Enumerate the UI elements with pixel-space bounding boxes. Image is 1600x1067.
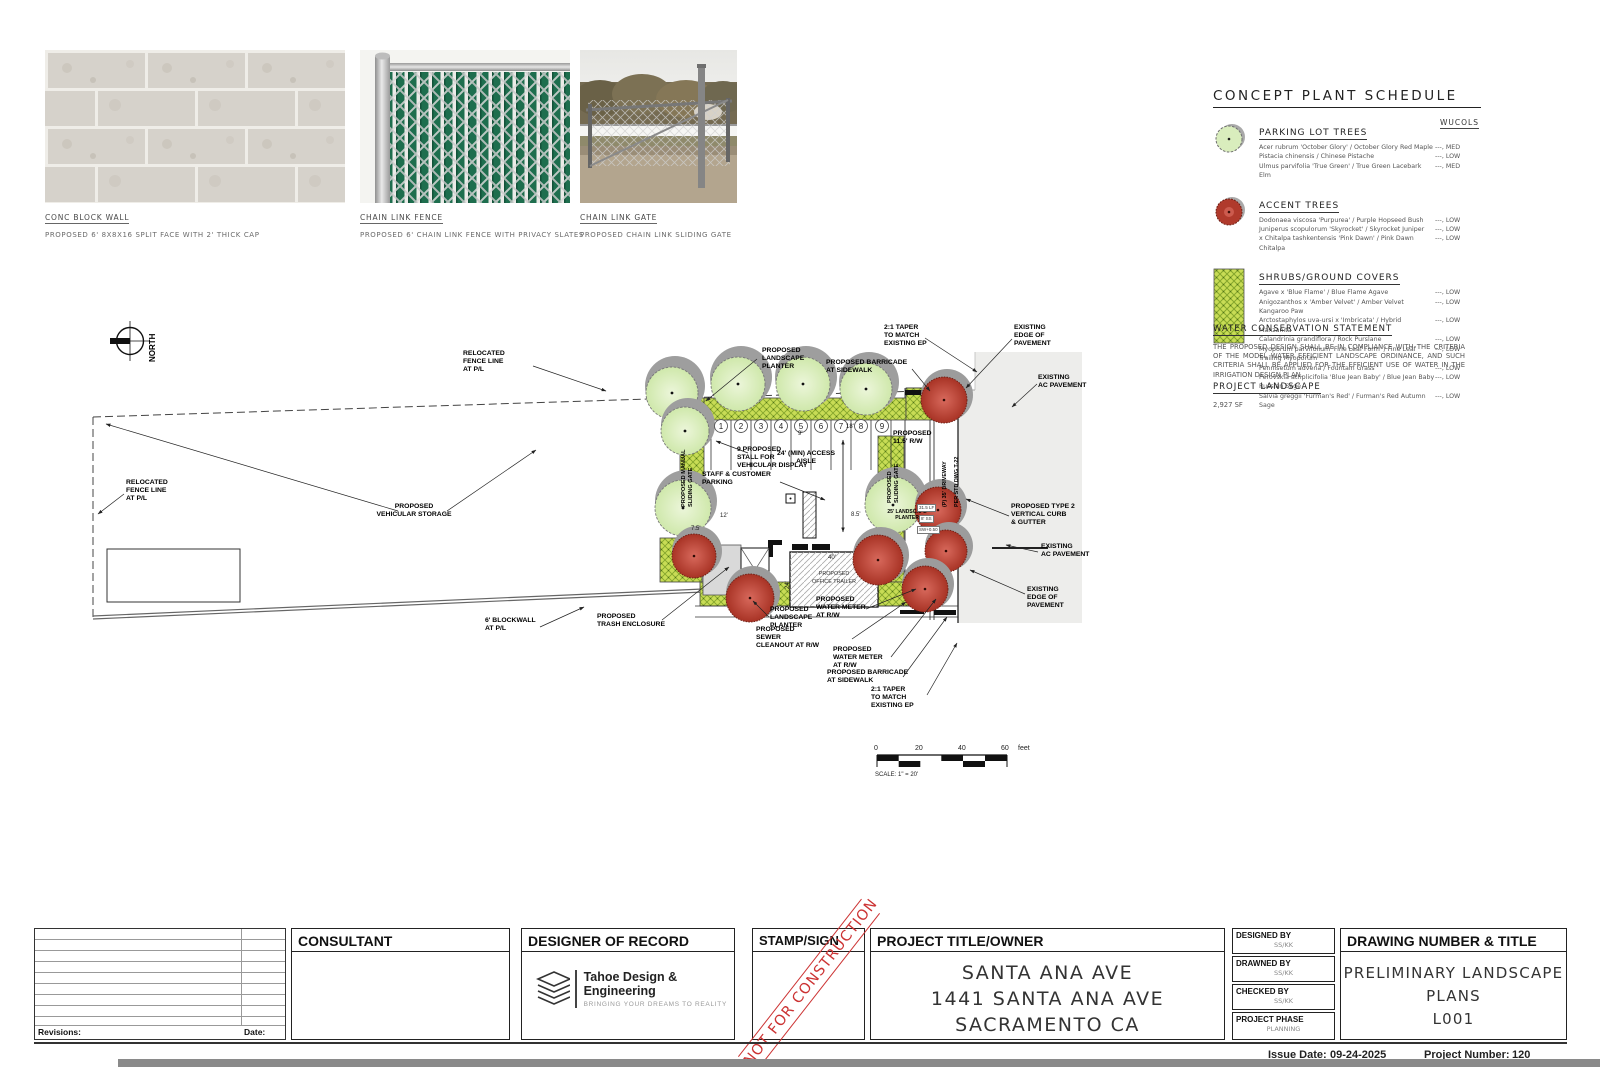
office-trailer-label: PROPOSED OFFICE TRAILER xyxy=(798,570,870,586)
project-title-panel: PROJECT TITLE/OWNER SANTA ANA AVE 1441 S… xyxy=(870,928,1225,1040)
project-line: SANTA ANA AVE xyxy=(871,962,1224,984)
plan-annotation: PROPOSED TRASH ENCLOSURE xyxy=(597,613,665,629)
meta-label: CHECKED BY xyxy=(1233,985,1334,996)
checked-by-cell: CHECKED BY SS/KK xyxy=(1232,984,1335,1010)
scale-tick: 0 xyxy=(874,745,878,752)
scale-caption: SCALE: 1" = 20' xyxy=(875,772,918,778)
stall-number: 9 xyxy=(880,422,885,431)
curb-tag: 8' SS xyxy=(919,515,934,523)
designer-of-record-panel: DESIGNER OF RECORD Tahoe Design & Engine… xyxy=(521,928,735,1040)
stall-number: 4 xyxy=(779,422,784,431)
plan-annotation: 2:1 TAPER TO MATCH EXISTING EP xyxy=(871,686,914,711)
plan-annotation: EXISTING AC PAVEMENT xyxy=(1041,543,1089,559)
plan-annotation: (P) 35' DRIVEWAY xyxy=(941,461,949,507)
dimension-label: 24' xyxy=(785,581,791,589)
plan-annotation: EXISTING AC PAVEMENT xyxy=(1038,374,1086,390)
stall-number: 7 xyxy=(839,422,844,431)
dimension-label: 40' xyxy=(828,555,836,561)
meta-label: DRAWNED BY xyxy=(1233,957,1334,968)
stall-number: 5 xyxy=(799,422,804,431)
dimension-label: 7.5' xyxy=(691,526,701,532)
project-header: PROJECT TITLE/OWNER xyxy=(871,929,1224,952)
utility-boxes xyxy=(786,492,816,538)
meta-value: SS/KK xyxy=(1233,941,1334,949)
plan-annotation: EXISTING EDGE OF PAVEMENT xyxy=(1027,586,1064,611)
plan-annotation: PROPOSED BARRICADE AT SIDEWALK xyxy=(826,359,907,375)
consultant-panel: CONSULTANT xyxy=(291,928,510,1040)
plan-annotation: PROPOSED TYPE 2 VERTICAL CURB & GUTTER xyxy=(1011,503,1075,528)
plan-annotation: PROPOSED VEHICULAR STORAGE xyxy=(368,503,460,519)
layered-stack-logo-icon xyxy=(534,970,570,1008)
scale-bar: 0 20 40 60 feet xyxy=(874,745,1030,767)
drawing-title-line: PLANS xyxy=(1341,987,1566,1005)
stall-number: 2 xyxy=(739,422,744,431)
stall-number: 8 xyxy=(859,422,864,431)
dimension-label: 8.5' xyxy=(851,512,861,518)
revisions-label: Revisions: xyxy=(38,1026,81,1039)
plan-annotation: PROPOSED SEWER CLEANOUT AT R/W xyxy=(756,626,819,651)
meta-label: DESIGNED BY xyxy=(1233,929,1334,940)
logo-company-name: Tahoe Design & Engineering xyxy=(584,970,734,998)
stall-number: 3 xyxy=(759,422,764,431)
meta-value: SS/KK xyxy=(1233,969,1334,977)
dimension-label: 9' xyxy=(798,431,802,437)
plan-annotation: PER STD DWG T-22 xyxy=(953,457,961,507)
scale-tick: 60 xyxy=(1001,745,1009,752)
plan-annotation: PROPOSED BARRICADE AT SIDEWALK xyxy=(827,669,908,685)
meta-value: PLANNING xyxy=(1233,1025,1334,1033)
bottom-gray-bar xyxy=(118,1059,1600,1067)
company-logo: Tahoe Design & Engineering BRINGING YOUR… xyxy=(534,970,734,1008)
plan-annotation: PROPOSED SLIDING GATE xyxy=(887,464,900,503)
project-phase-cell: PROJECT PHASE PLANNING xyxy=(1232,1012,1335,1040)
logo-tagline: BRINGING YOUR DREAMS TO REALITY xyxy=(584,1001,734,1008)
curb-tag: 31.5 LF xyxy=(917,504,936,512)
revision-table: Revisions: Date: xyxy=(34,928,286,1040)
dimension-label: 18' xyxy=(846,424,854,430)
plan-annotation: RELOCATED FENCE LINE AT P/L xyxy=(126,479,168,504)
dimension-label: 12' xyxy=(720,513,728,519)
date-label: Date: xyxy=(244,1026,265,1039)
plan-annotation: STAFF & CUSTOMER PARKING xyxy=(702,471,771,487)
plan-annotation: EXISTING EDGE OF PAVEMENT xyxy=(1014,324,1051,349)
scale-unit: feet xyxy=(1018,745,1030,752)
stall-number: 6 xyxy=(819,422,824,431)
designer-header: DESIGNER OF RECORD xyxy=(522,929,734,952)
drawing-number-panel: DRAWING NUMBER & TITLE PRELIMINARY LANDS… xyxy=(1340,928,1567,1040)
drawing-title-line: PRELIMINARY LANDSCAPE xyxy=(1341,964,1566,982)
designed-by-cell: DESIGNED BY SS/KK xyxy=(1232,928,1335,954)
existing-pavement xyxy=(958,352,1082,623)
revision-table-labels: Revisions: Date: xyxy=(35,1025,285,1039)
plan-annotation: RELOCATED FENCE LINE AT P/L xyxy=(463,350,505,375)
scale-tick: 40 xyxy=(958,745,966,752)
drawing-sheet: CONC BLOCK WALL PROPOSED 6' 8X8X16 SPLIT… xyxy=(0,0,1600,1067)
revision-table-divider xyxy=(241,929,242,1039)
stall-number: 1 xyxy=(719,422,724,431)
plan-annotation: 6' BLOCKWALL AT P/L xyxy=(485,617,536,633)
meta-label: PROJECT PHASE xyxy=(1233,1013,1334,1024)
drawing-number: L001 xyxy=(1341,1010,1566,1028)
barricade-mark xyxy=(934,610,956,615)
plan-annotation: 24' (MIN) ACCESS AISLE xyxy=(770,450,842,466)
site-plan-drawing: 1 2 3 4 5 6 7 8 9 xyxy=(0,0,1600,1067)
curb-tag: SW+0.50 xyxy=(917,526,940,534)
plan-annotation: PROPOSED MANUAL SLIDING GATE xyxy=(681,450,694,508)
drawned-by-cell: DRAWNED BY SS/KK xyxy=(1232,956,1335,982)
consultant-header: CONSULTANT xyxy=(292,929,509,952)
scale-tick: 20 xyxy=(915,745,923,752)
plan-annotation: PROPOSED WATER METER AT R/W xyxy=(816,596,866,621)
plan-annotation: PROPOSED WATER METER AT R/W xyxy=(833,646,883,671)
project-line: 1441 SANTA ANA AVE xyxy=(871,988,1224,1010)
plan-annotation: 2:1 TAPER TO MATCH EXISTING EP xyxy=(884,324,927,349)
stamp-sign-panel: STAMP/SIGN NOT FOR CONSTRUCTION xyxy=(752,928,865,1040)
meta-value: SS/KK xyxy=(1233,997,1334,1005)
plan-annotation: PROPOSED LANDSCAPE PLANTER xyxy=(762,347,804,372)
project-line: SACRAMENTO CA xyxy=(871,1014,1224,1036)
north-arrow-icon xyxy=(110,321,150,361)
north-label: NORTH xyxy=(149,334,157,362)
plan-annotation: PROPOSED 11.5' R/W xyxy=(893,430,932,446)
drawing-header: DRAWING NUMBER & TITLE xyxy=(1341,929,1566,952)
sheet-border-bottom xyxy=(34,1042,1567,1044)
